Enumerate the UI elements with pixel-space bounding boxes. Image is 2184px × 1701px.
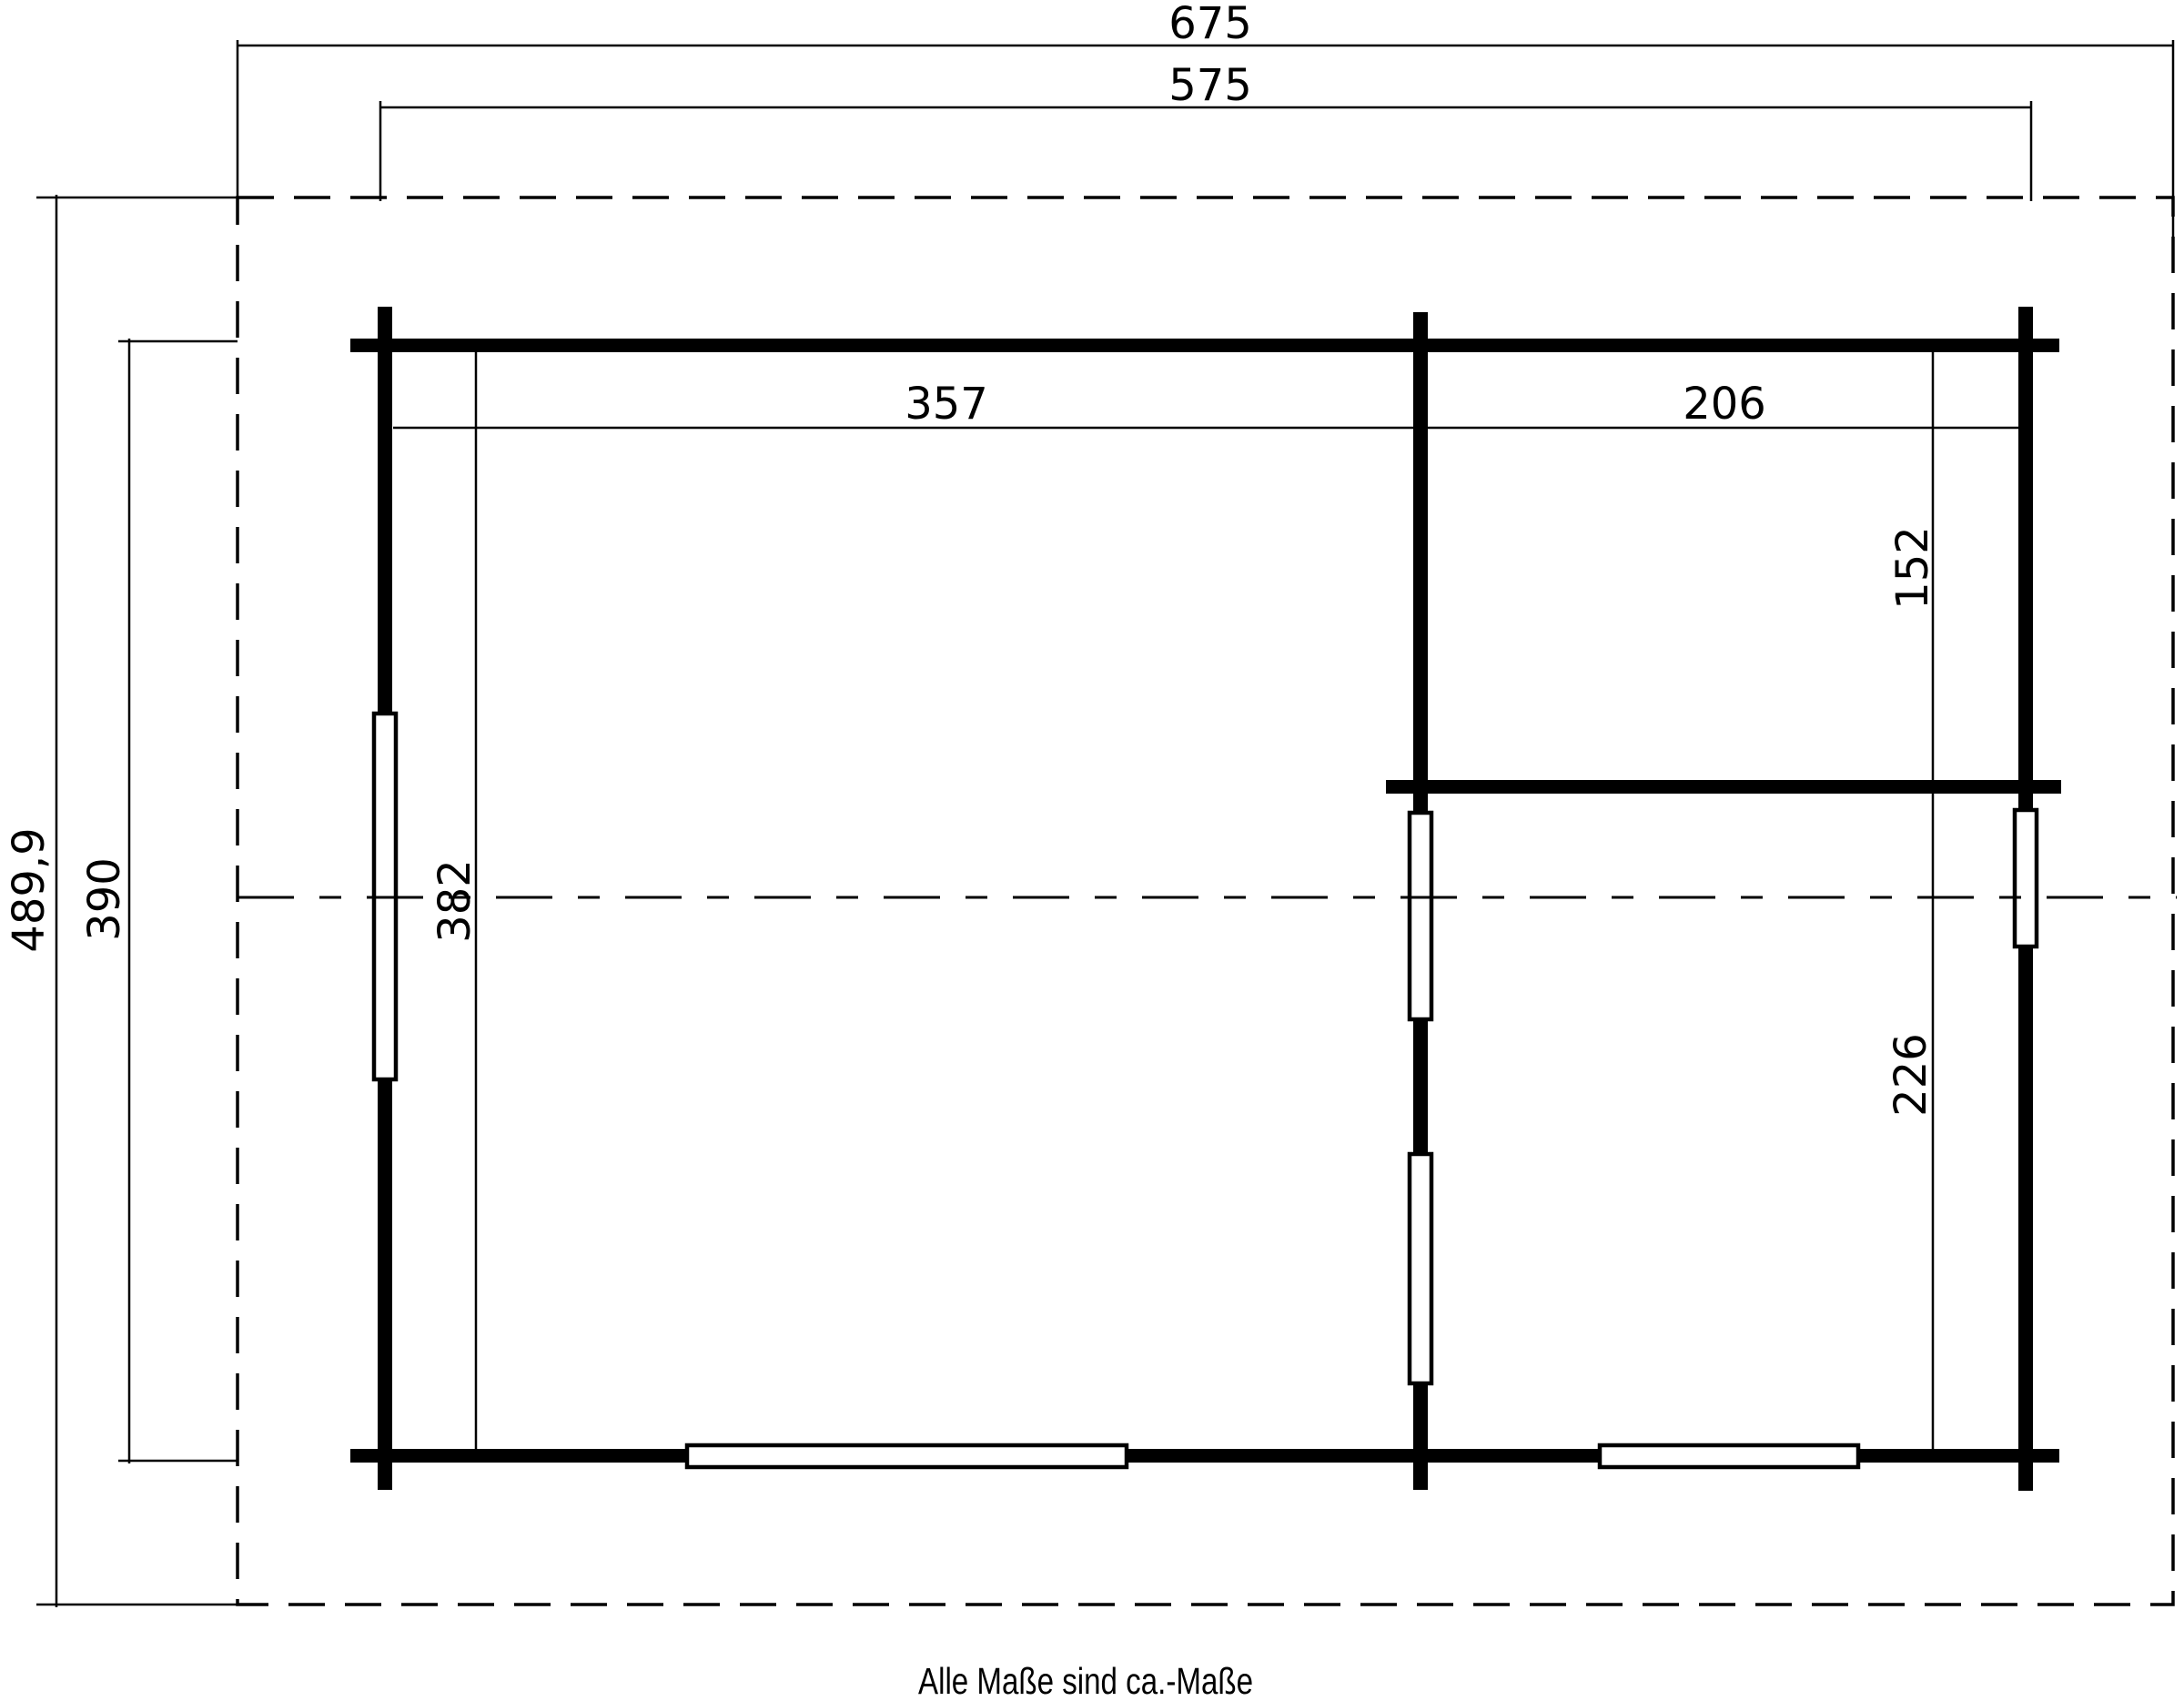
roof-overhang-outline (238, 197, 2173, 1605)
floorplan-canvas: 675 575 357 206 489,9 390 382 152 226 Al… (0, 0, 2184, 1701)
footer-note: Alle Maße sind ca.-Maße (918, 1660, 1253, 1701)
dimension-labels: 675 575 357 206 489,9 390 382 152 226 (4, 0, 1938, 1117)
partition-door-upper (1410, 813, 1431, 1019)
label-right-rooms-width: 206 (1683, 379, 1766, 430)
front-right-window (1600, 1445, 1858, 1467)
partition-door-lower (1410, 1154, 1431, 1383)
floorplan-page: 675 575 357 206 489,9 390 382 152 226 Al… (0, 0, 2184, 1701)
right-divider-wall (1386, 780, 2061, 794)
label-roof-depth: 489,9 (4, 827, 55, 952)
label-body-depth: 390 (79, 857, 130, 941)
label-main-room-depth: 382 (430, 859, 480, 943)
label-body-width: 575 (1168, 60, 1252, 111)
label-upper-right-room-depth: 152 (1887, 526, 1938, 610)
openings (374, 714, 2037, 1467)
right-wall-window (2015, 810, 2037, 947)
label-roof-width: 675 (1168, 0, 1252, 49)
dimension-lines (36, 40, 2173, 1607)
top-wall (350, 339, 2059, 352)
front-double-door (687, 1445, 1127, 1467)
label-lower-right-room-depth: 226 (1886, 1033, 1936, 1117)
label-main-room-width: 357 (905, 379, 988, 430)
